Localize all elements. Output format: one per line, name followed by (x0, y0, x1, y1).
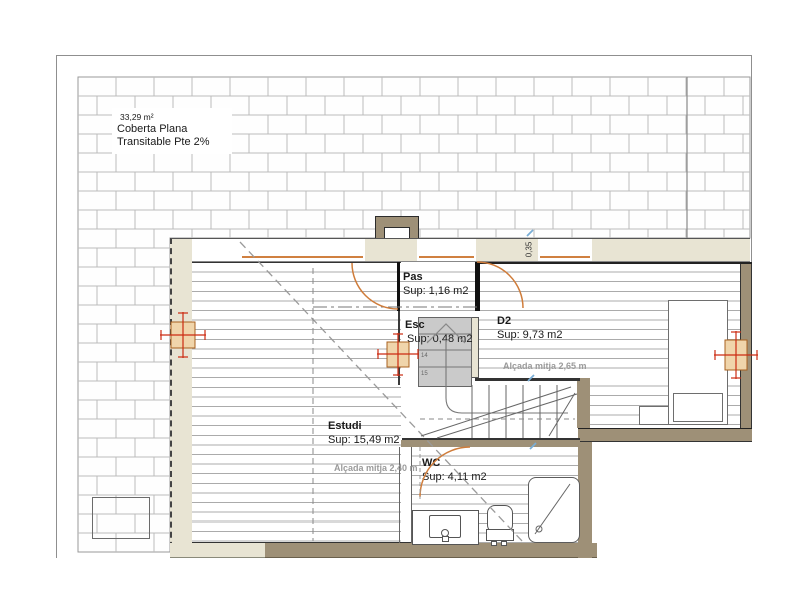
roof-subtitle: Transitable Pte 2% (117, 136, 210, 149)
window-glass-line (540, 256, 590, 258)
pas-label: Pas (403, 271, 423, 284)
stair-step-number-14: 14 (421, 353, 428, 360)
roof-skylight (92, 497, 150, 539)
window-d2 (538, 238, 592, 262)
d2-bottom-left-wall-line (475, 378, 580, 381)
pas-area: Sup: 1,16 m2 (403, 285, 468, 298)
toilet-foot-left (491, 541, 497, 546)
estudi-cut-band (192, 520, 401, 523)
toilet-foot-right (501, 541, 507, 546)
estudi-top-wall-line (192, 262, 401, 263)
wall-parapet-right (592, 238, 750, 262)
esc-area: Sup: 0,48 m2 (407, 333, 472, 346)
parapet-wall (192, 238, 240, 262)
window-glass-line (419, 256, 474, 258)
nightstand (639, 406, 669, 425)
stair-step-number-15: 15 (421, 371, 428, 378)
wall-stair-d2 (577, 378, 590, 428)
window-pas (417, 238, 476, 262)
wc-area: Sup: 4,11 m2 (422, 471, 487, 484)
d2-ceiling-note: Alçada mitja 2,65 m (503, 361, 587, 371)
wall-d2-right (740, 262, 752, 442)
stair-run-bottom-line (402, 438, 580, 440)
roof-area-label: 33,29 m² (120, 112, 154, 122)
d2-top-wall-line (479, 262, 752, 264)
parapet-dimension: 0,35 (525, 238, 534, 262)
estudi-area: Sup: 15,49 m2 (328, 434, 400, 447)
wall-bottom-left (170, 543, 265, 558)
wall-chimney-base (365, 238, 417, 262)
esc-label: Esc (405, 319, 425, 332)
stair-run-floor (402, 385, 577, 438)
pas-left-jamb (397, 262, 400, 311)
estudi-ceiling-note: Alçada mitja 2,40 m (334, 463, 418, 473)
toilet-tank (486, 529, 514, 541)
sink-faucet-base (442, 536, 449, 542)
wc-label: WC (422, 457, 440, 470)
estudi-floor (192, 263, 401, 542)
pas-right-jamb (475, 262, 480, 311)
floor-plan-canvas: 33,29 m² Coberta Plana Transitable Pte 2… (0, 0, 802, 612)
wall-bottom (265, 543, 597, 558)
frame-left (56, 55, 57, 558)
wc-left-wall-line-outer (399, 447, 400, 543)
window-glass-line (242, 256, 363, 258)
esc-d2-wall (471, 317, 479, 378)
d2-area: Sup: 9,73 m2 (497, 329, 562, 342)
wall-wc-top (399, 440, 580, 447)
wall-d2-bottom (578, 428, 752, 442)
wall-left (170, 238, 192, 558)
bed-pillow (673, 393, 723, 422)
estudi-label: Estudi (328, 420, 362, 433)
esc-left-wall-line (398, 311, 400, 385)
frame-right (751, 55, 752, 265)
estudi-bottom-wall-line (192, 542, 412, 543)
d2-label: D2 (497, 315, 511, 328)
roof-title: Coberta Plana (117, 123, 187, 136)
window-estudi (240, 238, 365, 262)
wall-wc-right (578, 442, 592, 558)
frame-top (56, 55, 752, 56)
shower-tray (528, 477, 580, 543)
